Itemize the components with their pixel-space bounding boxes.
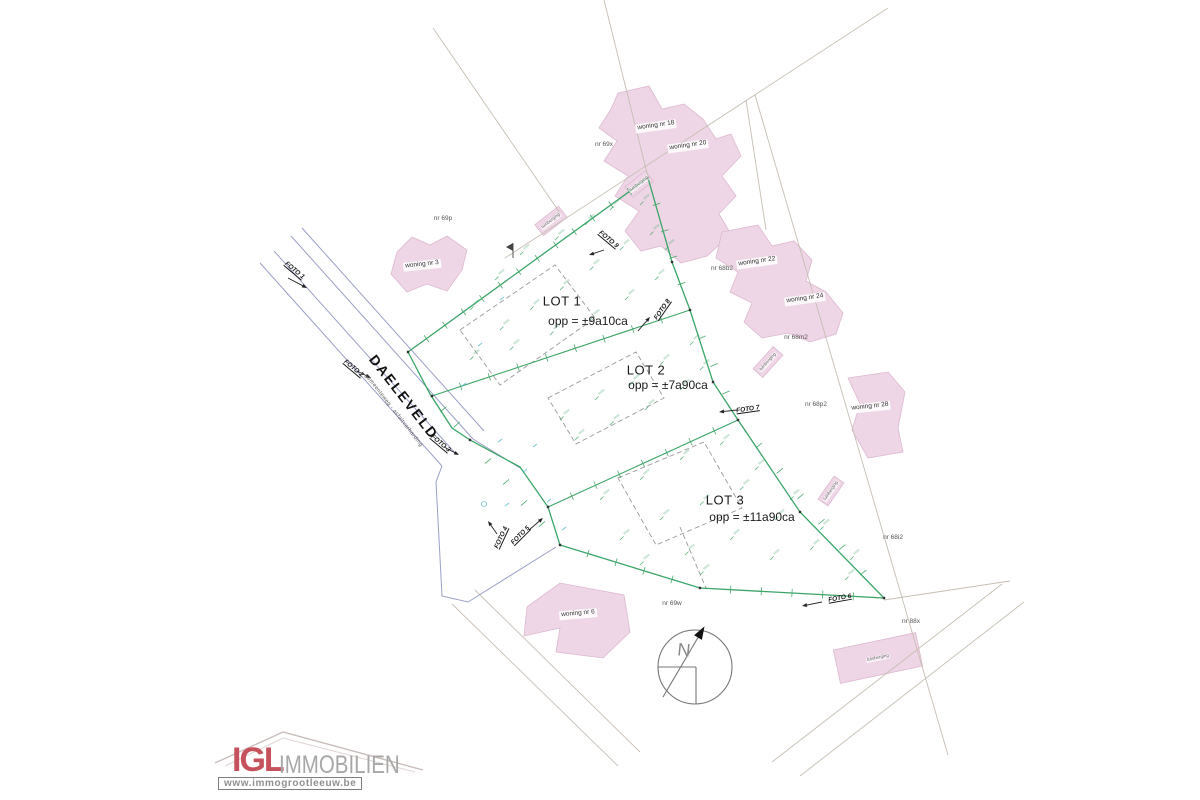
- lot-2-name: LOT 2: [627, 364, 665, 377]
- lot-1-name: LOT 1: [543, 295, 581, 308]
- agency-logo: IGL IMMOBILIEN www.immogrootleeuw.be: [213, 729, 425, 791]
- cul-de-sac-outline: [436, 466, 556, 602]
- parcel-nr-69w: nr 69w: [662, 601, 682, 608]
- parcel-nr-68m2: nr 68m2: [784, 335, 808, 342]
- logo-word: IMMOBILIEN: [279, 751, 400, 780]
- lot-1-area: opp = ±9a10ca: [548, 315, 628, 327]
- parcel-nr-69x: nr 69x: [595, 142, 613, 149]
- north-compass-icon: [658, 626, 732, 704]
- compass-north-label: N: [677, 640, 692, 659]
- survey-flag-icon: [506, 243, 513, 258]
- logo-initials: IGL: [232, 741, 283, 780]
- building-woning-22-24: [716, 225, 843, 342]
- parcel-lines: [433, 0, 1024, 776]
- lot-2-area: opp = ±7a90ca: [628, 379, 708, 391]
- lot-3-area: opp = ±11a90ca: [709, 511, 794, 523]
- parcel-nr-68b2: nr 68b2: [711, 266, 733, 273]
- parcel-nr-69p: nr 69p: [434, 216, 452, 223]
- logo-website[interactable]: www.immogrootleeuw.be: [218, 777, 362, 790]
- parcel-nr-68p2: nr 68p2: [805, 402, 827, 409]
- plan-linework: [0, 0, 1200, 800]
- parcel-nr-68i2: nr 68i2: [883, 535, 903, 542]
- building-woning-18-20: [599, 86, 741, 263]
- building-woning-28: [848, 372, 905, 458]
- building-woning-6: [524, 583, 630, 658]
- parcel-nr-88x: nr 88x: [902, 619, 920, 626]
- lot-3-name: LOT 3: [706, 494, 744, 507]
- cadastral-plan: DAELEVELD gemeenteweg - asfaltverharding…: [0, 0, 1200, 800]
